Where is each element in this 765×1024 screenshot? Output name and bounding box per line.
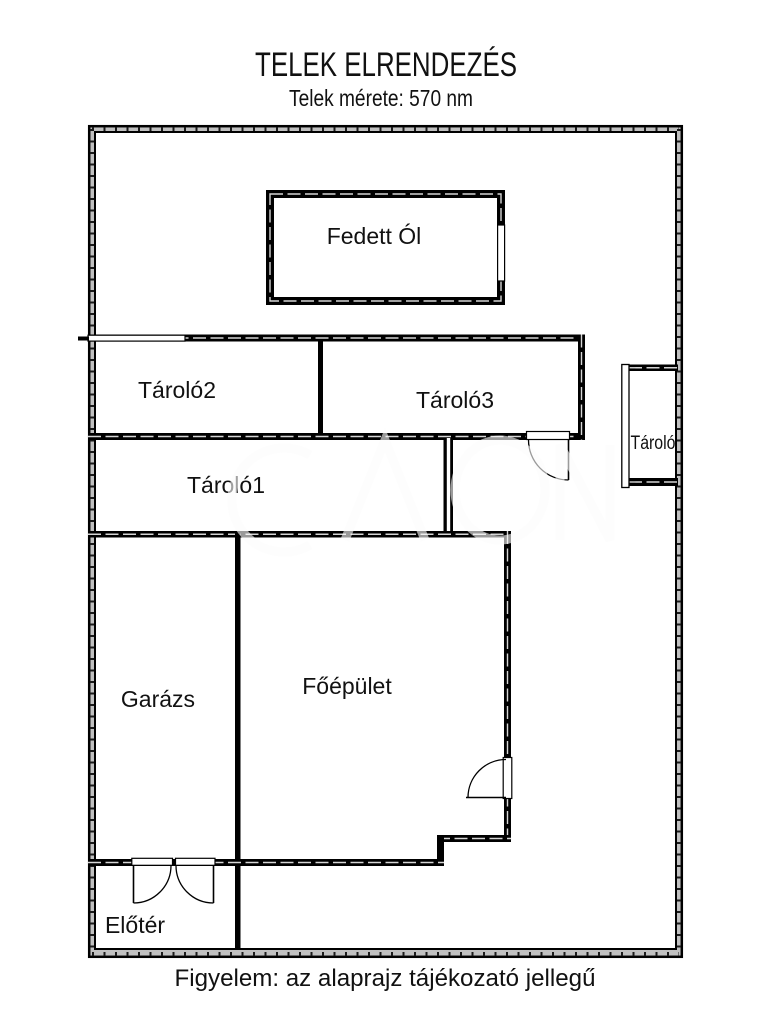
- svg-text:Fedett Ól: Fedett Ól: [327, 223, 422, 249]
- svg-text:Telek mérete: 570 nm: Telek mérete: 570 nm: [289, 85, 473, 111]
- svg-text:Garázs: Garázs: [121, 686, 195, 712]
- svg-text:Főépület: Főépület: [302, 673, 392, 699]
- svg-text:Tároló: Tároló: [631, 433, 676, 454]
- svg-text:TELEK ELRENDEZÉS: TELEK ELRENDEZÉS: [255, 46, 517, 84]
- svg-text:Előtér: Előtér: [105, 912, 165, 938]
- svg-text:Tároló3: Tároló3: [416, 387, 494, 413]
- svg-text:Tároló2: Tároló2: [138, 377, 216, 403]
- svg-text:Tároló1: Tároló1: [187, 472, 265, 498]
- svg-text:Figyelem: az alaprajz tájékoza: Figyelem: az alaprajz tájékozató jellegű: [175, 965, 596, 992]
